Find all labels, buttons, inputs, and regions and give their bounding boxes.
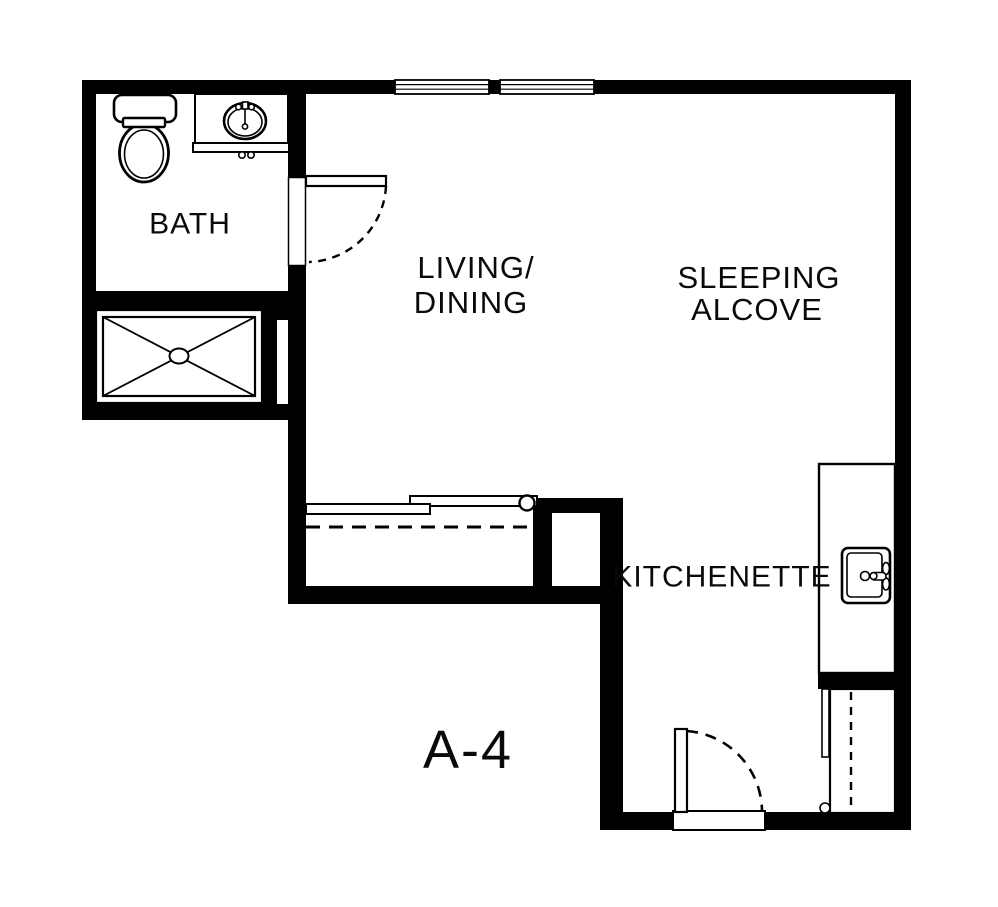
- sleeping-alcove-label-line1: SLEEPING: [677, 260, 840, 295]
- window-icon: [500, 80, 594, 94]
- toilet-icon: [114, 95, 176, 182]
- living-dining-label-line2: DINING: [414, 285, 529, 320]
- wall-shower-right: [262, 309, 277, 404]
- wall-counter-divider: [818, 673, 911, 689]
- wall-bath-bottom: [82, 404, 306, 420]
- wall-bottom-right: [763, 812, 911, 830]
- wall-top: [82, 80, 911, 94]
- floor-plan-canvas: BATH LIVING/ DINING SLEEPING ALCOVE KITC…: [0, 0, 998, 907]
- wall-left-bath: [82, 80, 96, 420]
- sleeping-alcove-label-line2: ALCOVE: [691, 292, 823, 327]
- entry-door-icon: [673, 729, 765, 830]
- window-icon: [395, 80, 489, 94]
- kitchenette-label: KITCHENETTE: [612, 561, 831, 594]
- kitchen-sink-icon: [842, 548, 890, 603]
- wall-bath-shower-separator: [96, 291, 306, 309]
- walls: [82, 80, 911, 830]
- vanity-sink-icon: [193, 94, 289, 158]
- wall-right: [895, 80, 911, 830]
- refrigerator-icon: [820, 689, 895, 813]
- bath-label: BATH: [149, 208, 231, 241]
- door-knob-icon: [520, 496, 535, 511]
- wall-bottom-left: [600, 812, 675, 830]
- wall-mid-horizontal: [288, 586, 623, 604]
- floor-plan-drawing: BATH LIVING/ DINING SLEEPING ALCOVE KITC…: [0, 0, 998, 907]
- wall-living-left-lower: [288, 266, 306, 586]
- wall-entry-left: [600, 498, 623, 830]
- chase-left: [533, 498, 552, 604]
- shower-icon: [96, 310, 262, 403]
- bath-door-icon: [289, 176, 387, 266]
- living-dining-label-line1: LIVING/: [417, 250, 534, 285]
- wall-living-left-upper: [288, 94, 306, 178]
- plan-title: A-4: [423, 720, 513, 780]
- closet-sliding-doors-icon: [306, 496, 537, 528]
